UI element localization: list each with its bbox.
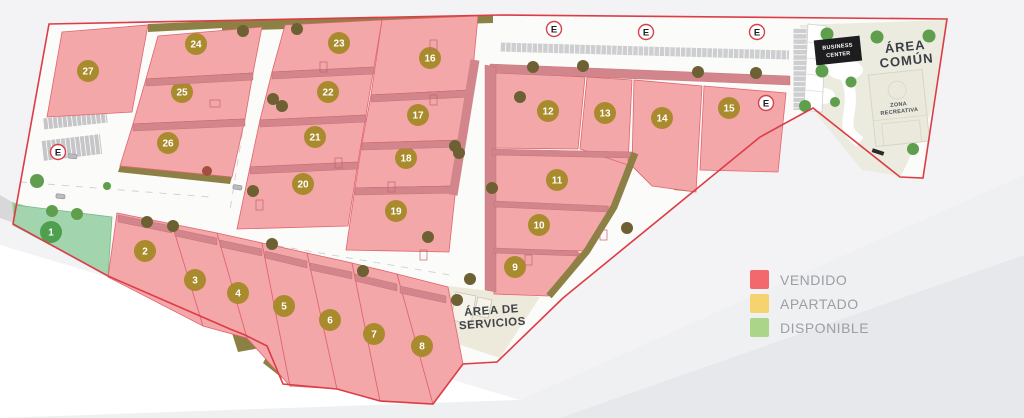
sports-court xyxy=(868,69,929,146)
tree-icon xyxy=(291,23,303,35)
tree-icon xyxy=(846,77,857,88)
business-center-box xyxy=(814,36,862,66)
tree-icon xyxy=(816,65,829,78)
entrance-marker-letter: E xyxy=(643,27,649,38)
entrance-marker-5: E xyxy=(759,96,774,111)
legend-swatch-vendido xyxy=(750,270,769,289)
tree-icon xyxy=(514,91,526,103)
legend-swatch-disponible xyxy=(750,318,769,337)
tree-icon xyxy=(46,205,58,217)
tree-icon xyxy=(167,220,179,232)
tree-icon xyxy=(276,100,288,112)
lot-15-number: 15 xyxy=(723,104,735,115)
tree-icon xyxy=(453,147,465,159)
entrance-marker-letter: E xyxy=(55,147,61,158)
lot-4-number: 4 xyxy=(235,289,241,300)
lot-12-number: 12 xyxy=(542,107,554,118)
car-icon xyxy=(68,154,77,159)
business-center-sign: BUSINESS CENTER xyxy=(814,36,862,66)
legend-label-apartado: APARTADO xyxy=(780,296,859,312)
entrance-marker-letter: E xyxy=(551,24,557,35)
tree-icon xyxy=(141,216,153,228)
tree-icon xyxy=(907,143,919,155)
lot-1-number: 1 xyxy=(48,228,54,239)
lot-6-number: 6 xyxy=(327,316,333,327)
site-plan: 1234567891011121314151617181920212223242… xyxy=(0,0,1024,418)
lot-27[interactable]: 27 xyxy=(47,25,148,117)
lot-16[interactable]: 16 xyxy=(371,16,478,95)
lot-3-number: 3 xyxy=(192,276,198,287)
tree-icon xyxy=(486,182,498,194)
legend-item-apartado: APARTADO xyxy=(750,294,869,313)
tree-icon xyxy=(750,67,762,79)
entrance-marker-letter: E xyxy=(754,27,760,38)
tree-icon xyxy=(451,294,463,306)
lot-12[interactable]: 12 xyxy=(490,72,585,149)
tree-icon xyxy=(237,25,249,37)
lot-14-number: 14 xyxy=(656,114,668,125)
lot-14-area[interactable] xyxy=(632,80,702,192)
lot-5-number: 5 xyxy=(281,302,287,313)
car-icon xyxy=(56,194,65,199)
tree-icon xyxy=(247,185,259,197)
lot-21-number: 21 xyxy=(309,133,321,144)
lot-2-number: 2 xyxy=(142,247,148,258)
tree-icon xyxy=(30,174,44,188)
lot-25-number: 25 xyxy=(176,88,188,99)
legend-swatch-apartado xyxy=(750,294,769,313)
tree-icon xyxy=(71,208,83,220)
lot-20-number: 20 xyxy=(297,180,309,191)
tree-icon xyxy=(357,265,369,277)
tree-icon xyxy=(621,222,633,234)
lot-17-number: 17 xyxy=(412,111,424,122)
tree-icon xyxy=(577,60,589,72)
lot-19[interactable]: 19 xyxy=(346,186,456,252)
lot-23-number: 23 xyxy=(333,39,345,50)
tree-icon xyxy=(202,166,212,176)
lot-27-number: 27 xyxy=(82,67,94,78)
lot-19-number: 19 xyxy=(390,207,402,218)
legend-label-disponible: DISPONIBLE xyxy=(780,320,869,336)
entrance-marker-2: E xyxy=(547,22,562,37)
lot-11-number: 11 xyxy=(552,176,563,187)
legend-label-vendido: VENDIDO xyxy=(780,272,847,288)
tree-icon xyxy=(527,61,539,73)
lot-13-number: 13 xyxy=(599,109,611,120)
entrance-marker-1: E xyxy=(51,145,66,160)
lot-18-number: 18 xyxy=(400,154,412,165)
lot-16-number: 16 xyxy=(424,54,436,65)
lot-14[interactable]: 14 xyxy=(632,80,702,192)
tree-icon xyxy=(692,66,704,78)
legend-item-vendido: VENDIDO xyxy=(750,270,869,289)
tree-icon xyxy=(464,273,476,285)
tree-icon xyxy=(103,182,111,190)
entrance-marker-3: E xyxy=(639,25,654,40)
tree-icon xyxy=(871,31,884,44)
lot-9-number: 9 xyxy=(512,263,518,274)
lot-26-number: 26 xyxy=(162,139,174,150)
lot-10-number: 10 xyxy=(533,221,545,232)
lot-8-number: 8 xyxy=(419,342,425,353)
tree-icon xyxy=(422,231,434,243)
legend: VENDIDOAPARTADODISPONIBLE xyxy=(750,270,869,337)
car-icon xyxy=(233,184,243,190)
tree-icon xyxy=(821,28,834,41)
lot-22-number: 22 xyxy=(322,88,334,99)
entrance-marker-letter: E xyxy=(763,98,769,109)
tree-icon xyxy=(830,97,840,107)
entrance-marker-4: E xyxy=(750,25,765,40)
tree-icon xyxy=(266,238,278,250)
lot-7-number: 7 xyxy=(371,330,377,341)
legend-item-disponible: DISPONIBLE xyxy=(750,318,869,337)
lot-24-number: 24 xyxy=(190,40,202,51)
